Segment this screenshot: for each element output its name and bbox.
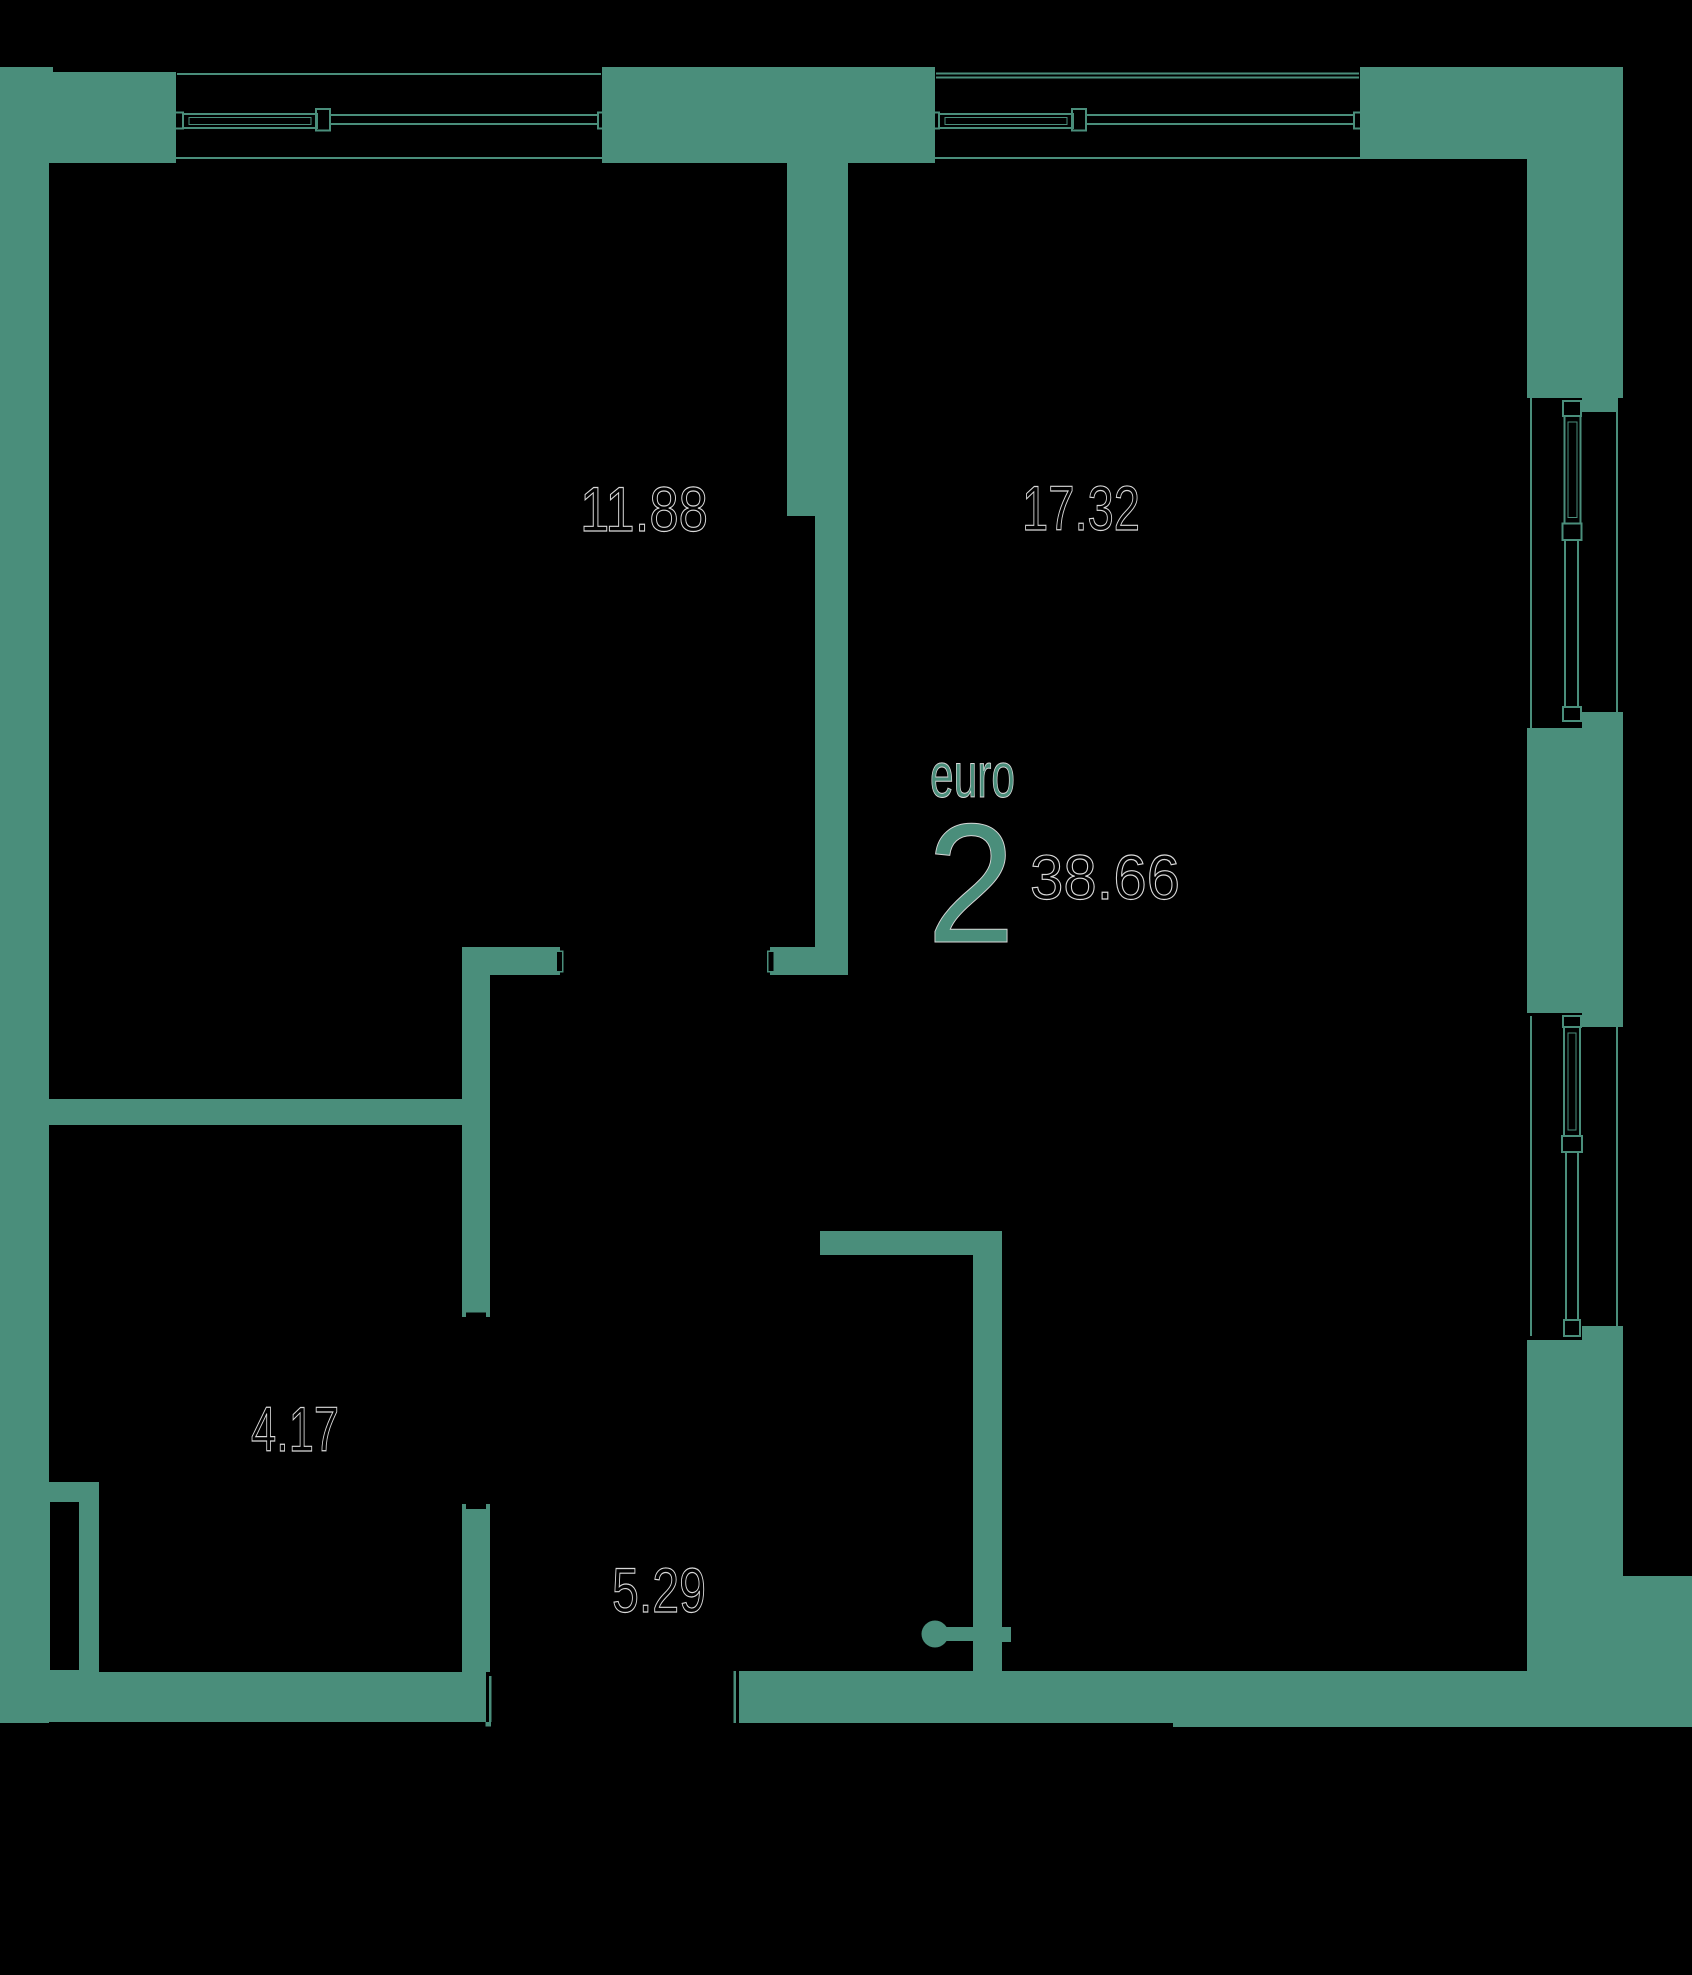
svg-text:4.17: 4.17 [251, 1395, 339, 1465]
svg-text:17.32: 17.32 [1022, 474, 1140, 544]
svg-text:5.29: 5.29 [612, 1556, 706, 1626]
svg-text:2: 2 [927, 789, 1015, 979]
svg-text:11.88: 11.88 [580, 475, 708, 545]
svg-text:38.66: 38.66 [1030, 843, 1180, 913]
